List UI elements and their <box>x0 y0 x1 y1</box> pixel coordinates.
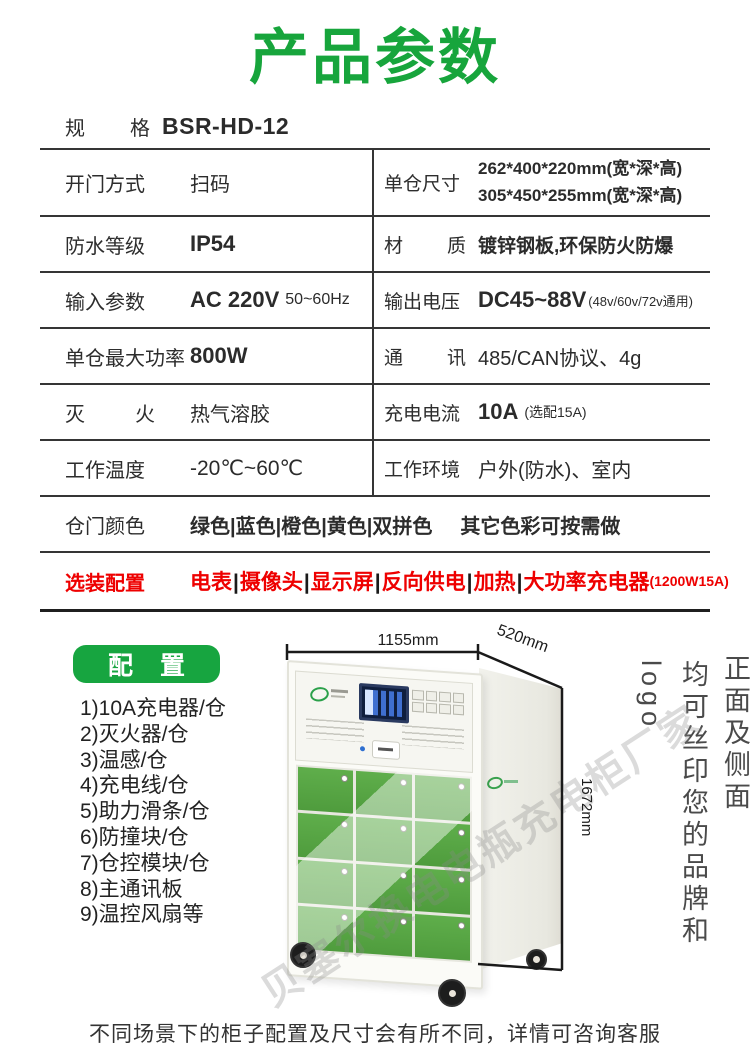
caster-wheel <box>438 979 466 1007</box>
lcd-content <box>365 689 403 717</box>
row-temp-env: 工作温度 -20℃~60℃ 工作环境 户外(防水)、室内 <box>40 441 710 497</box>
optional-separator: | <box>304 571 310 595</box>
row-input-output: 输入参数 AC 220V 50~60Hz 输出电压 DC45~88V (48v/… <box>40 273 710 329</box>
fire-control-value: 热气溶胶 <box>190 398 270 427</box>
work-temp-label: 工作温度 <box>65 454 190 483</box>
locker-door <box>356 817 411 864</box>
config-list-item: 5)助力滑条/仓 <box>80 799 226 825</box>
fire-control-label: 灭 火 <box>65 398 155 427</box>
row-door-method-size: 开门方式 扫码 单仓尺寸 262*400*220mm(宽*深*高) 305*45… <box>40 150 710 217</box>
input-power-value: AC 220V <box>190 287 279 313</box>
indicator-dot <box>360 746 365 751</box>
locker-door-grid <box>296 765 472 963</box>
model-label: 规 格 <box>65 112 150 141</box>
indicator-keypad <box>412 690 464 716</box>
optional-item: 反向供电 <box>382 566 466 596</box>
output-voltage-value: DC45~88V <box>478 287 586 313</box>
optional-separator: | <box>517 571 523 595</box>
charge-current-label: 充电电流 <box>384 399 466 426</box>
silk-print-note-line2: 均可丝印您的品牌和logo <box>630 654 714 964</box>
communication-label: 通 讯 <box>384 343 466 370</box>
optional-suffix: (1200W15A) <box>649 573 728 589</box>
charge-current-sub: (选配15A) <box>524 402 586 422</box>
product-figure: 配 置 1)10A充电器/仓2)灭火器/仓3)温感/仓4)充电线/仓5)助力滑条… <box>0 612 750 1012</box>
vent-left <box>306 718 364 742</box>
spec-table: 规 格 BSR-HD-12 开门方式 扫码 单仓尺寸 262*400*220mm… <box>40 104 710 612</box>
vent-right <box>402 725 464 749</box>
cabinet-control-panel <box>295 671 473 773</box>
optional-separator: | <box>233 571 239 595</box>
config-list-item: 9)温控风扇等 <box>80 902 226 928</box>
door-color-value: 绿色|蓝色|橙色|黄色|双拼色 <box>190 510 432 539</box>
row-optional: 选装配置 电表|摄像头|显示屏|反向供电|加热|大功率充电器 (1200W15A… <box>40 553 710 612</box>
locker-door <box>415 914 470 961</box>
logo-text <box>331 689 348 693</box>
row-fire-current: 灭 火 热气溶胶 充电电流 10A (选配15A) <box>40 385 710 441</box>
brand-logo <box>310 685 350 704</box>
config-list-item: 6)防撞块/仓 <box>80 825 226 851</box>
dim-width-label: 1155mm <box>377 632 438 649</box>
config-list-item: 8)主通讯板 <box>80 877 226 903</box>
optional-separator: | <box>467 571 473 595</box>
row-power-comm: 单仓最大功率 800W 通 讯 485/CAN协议、4g <box>40 329 710 385</box>
config-list-item: 7)仓控模块/仓 <box>80 851 226 877</box>
door-method-label: 开门方式 <box>65 168 190 197</box>
model-value: BSR-HD-12 <box>162 113 289 140</box>
cabinet-side <box>479 668 563 970</box>
material-label: 材 质 <box>384 231 466 258</box>
caster-wheel <box>290 942 316 968</box>
product-parameters-page: 产品参数 规 格 BSR-HD-12 开门方式 扫码 单仓尺寸 262*400*… <box>0 0 750 1057</box>
optional-item: 大功率充电器 <box>523 566 649 596</box>
door-method-value: 扫码 <box>190 168 230 197</box>
locker-door <box>415 775 470 822</box>
locker-door <box>415 821 470 868</box>
logo-text-2 <box>331 695 345 698</box>
locker-door <box>298 767 353 814</box>
door-color-note: 其它色彩可按需做 <box>460 510 620 539</box>
output-voltage-sub: (48v/60v/72v通用) <box>588 291 693 310</box>
caster-wheel <box>526 949 547 970</box>
optional-label: 选装配置 <box>65 567 190 596</box>
max-power-label: 单仓最大功率 <box>65 342 190 371</box>
waterproof-value: IP54 <box>190 231 235 257</box>
optional-item: 加热 <box>474 566 516 596</box>
logo-text <box>504 780 518 783</box>
optional-items: 电表|摄像头|显示屏|反向供电|加热|大功率充电器 <box>190 566 649 596</box>
work-temp-value: -20℃~60℃ <box>190 456 303 481</box>
material-value: 镀锌钢板,环保防火防爆 <box>478 231 673 258</box>
dim-height-label: 1672mm <box>578 778 595 836</box>
config-list-item: 2)灭火器/仓 <box>80 722 226 748</box>
logo-swirl-icon <box>308 685 330 703</box>
communication-value: 485/CAN协议、4g <box>478 342 641 371</box>
optional-item: 显示屏 <box>311 566 374 596</box>
page-title: 产品参数 <box>0 0 750 104</box>
scanner-window <box>372 740 400 760</box>
dim-depth-label: 520mm <box>495 622 551 656</box>
charge-current-value: 10A <box>478 399 518 425</box>
input-power-sub: 50~60Hz <box>285 291 350 309</box>
config-list-item: 1)10A充电器/仓 <box>80 696 226 722</box>
output-voltage-label: 输出电压 <box>384 287 466 314</box>
locker-door <box>298 859 353 906</box>
config-list: 1)10A充电器/仓2)灭火器/仓3)温感/仓4)充电线/仓5)助力滑条/仓6)… <box>80 696 226 928</box>
config-list-item: 4)充电线/仓 <box>80 773 226 799</box>
row-model: 规 格 BSR-HD-12 <box>40 104 710 150</box>
locker-door <box>415 867 470 914</box>
compartment-size-label: 单仓尺寸 <box>384 169 466 196</box>
config-badge: 配 置 <box>73 645 220 683</box>
silk-print-note: 正面及侧面 均可丝印您的品牌和logo <box>630 654 750 964</box>
row-waterproof-material: 防水等级 IP54 材 质 镀锌钢板,环保防火防爆 <box>40 217 710 273</box>
lcd-screen <box>359 683 409 723</box>
brand-logo-side <box>487 776 521 788</box>
logo-swirl-icon <box>486 775 505 791</box>
locker-door <box>356 771 411 818</box>
optional-item: 电表 <box>190 566 232 596</box>
locker-door <box>356 863 411 910</box>
footer-note: 不同场景下的柜子配置及尺寸会有所不同，详情可咨询客服 <box>0 1012 750 1057</box>
door-color-label: 仓门颜色 <box>65 510 190 539</box>
waterproof-label: 防水等级 <box>65 230 190 259</box>
silk-print-note-line1: 正面及侧面 <box>714 654 750 964</box>
compartment-size-value: 262*400*220mm(宽*深*高) 305*450*255mm(宽*深*高… <box>478 156 682 209</box>
cabinet-front <box>287 660 483 990</box>
max-power-value: 800W <box>190 343 247 369</box>
locker-door <box>298 813 353 860</box>
input-power-label: 输入参数 <box>65 286 190 315</box>
work-env-label: 工作环境 <box>384 455 466 482</box>
work-env-value: 户外(防水)、室内 <box>478 454 631 483</box>
optional-item: 摄像头 <box>240 566 303 596</box>
config-list-item: 3)温感/仓 <box>80 748 226 774</box>
row-door-color: 仓门颜色 绿色|蓝色|橙色|黄色|双拼色 其它色彩可按需做 <box>40 497 710 553</box>
optional-separator: | <box>375 571 381 595</box>
locker-door <box>356 910 411 957</box>
